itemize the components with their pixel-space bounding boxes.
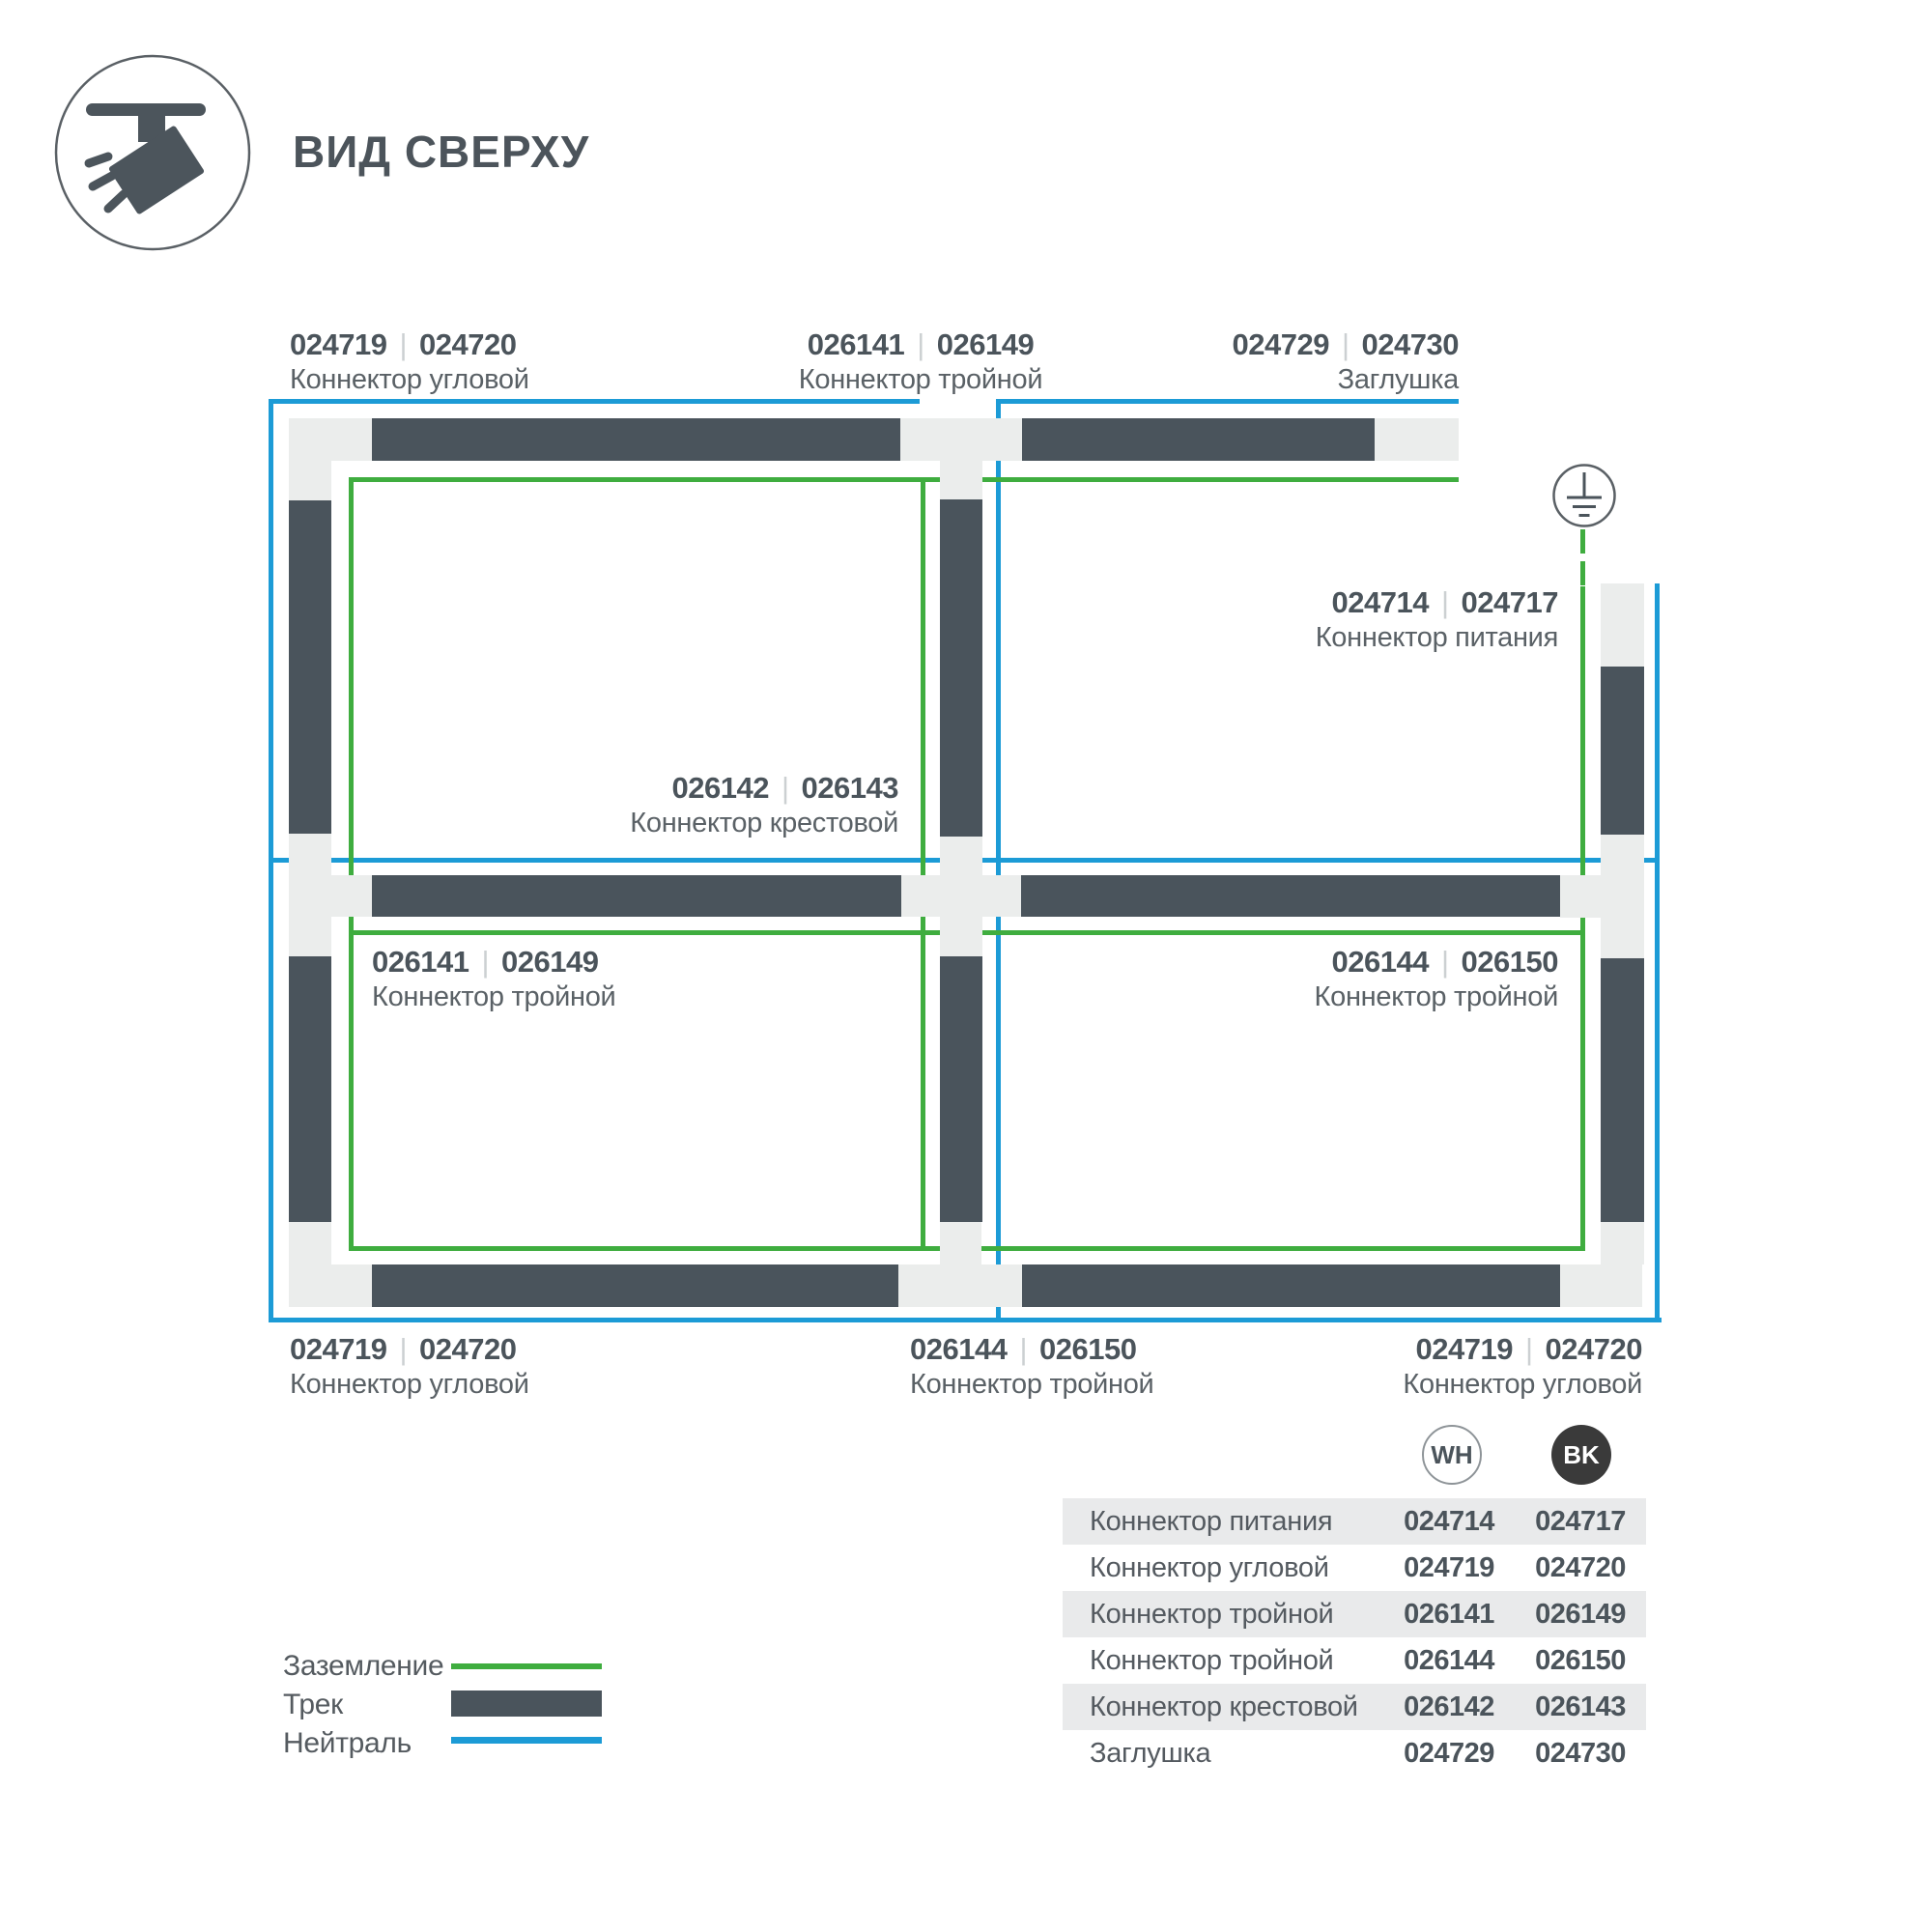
parts-table: Коннектор питания 024714 024717 Коннекто… (1063, 1498, 1646, 1776)
ground-line-right (1580, 586, 1585, 1251)
code-wh: 026141 (808, 327, 904, 361)
part-code-bk: 026150 (1515, 1645, 1646, 1677)
code-separator: | (1525, 1332, 1533, 1366)
neutral-line-top-left (269, 399, 920, 404)
neutral-line-top-right (997, 399, 1459, 404)
ground-line-left (349, 477, 354, 1251)
code-separator: | (917, 327, 924, 361)
code-separator: | (399, 327, 407, 361)
code-separator: | (1441, 585, 1449, 619)
code-bk: 026143 (802, 771, 898, 805)
corner-connector-top-left (289, 418, 372, 461)
code-wh: 024714 (1332, 585, 1429, 619)
code-separator: | (781, 771, 789, 805)
code-separator: | (1019, 1332, 1027, 1366)
ground-line-dash-2 (1580, 561, 1585, 585)
track-segment (289, 956, 331, 1222)
corner-connector-bottom-right (1560, 1264, 1642, 1307)
track-segment (940, 956, 982, 1222)
code-bk: 026149 (501, 945, 598, 979)
corner-connector-top-left (289, 461, 331, 500)
ground-line-top (349, 477, 1459, 482)
part-code-wh: 024729 (1383, 1738, 1515, 1770)
part-name: Коннектор тройной (1063, 1599, 1383, 1631)
end-cap (1375, 418, 1459, 461)
cross-connector (901, 875, 1021, 917)
connector-name: Коннектор тройной (910, 1370, 1153, 1399)
track-segment (1601, 667, 1644, 835)
label-corner-connector-bottom-left: 024719|024720 Коннектор угловой (290, 1334, 529, 1399)
connector-name: Коннектор угловой (290, 1370, 529, 1399)
triple-connector-left (331, 875, 372, 917)
connector-name: Коннектор тройной (799, 365, 1042, 394)
part-code-bk: 024717 (1515, 1506, 1646, 1538)
track-segment (1021, 875, 1560, 917)
top-view-diagram-page: ВИД СВЕРХУ (0, 0, 1932, 1932)
triple-connector-right (1601, 835, 1644, 958)
part-code-wh: 026142 (1383, 1691, 1515, 1723)
label-cross-connector: 026142|026143 Коннектор крестовой (630, 773, 898, 838)
part-code-wh: 024714 (1383, 1506, 1515, 1538)
track-segment (940, 499, 982, 838)
part-code-bk: 024730 (1515, 1738, 1646, 1770)
code-bk: 026150 (1462, 945, 1558, 979)
code-bk: 024730 (1362, 327, 1459, 361)
code-bk: 026150 (1039, 1332, 1136, 1366)
table-row: Коннектор тройной 026144 026150 (1063, 1637, 1646, 1684)
code-bk: 024717 (1462, 585, 1558, 619)
earth-ground-icon (1550, 462, 1618, 529)
label-triple-connector-right: 026144|026150 Коннектор тройной (1315, 947, 1558, 1011)
part-code-bk: 026143 (1515, 1691, 1646, 1723)
part-name: Коннектор тройной (1063, 1645, 1383, 1677)
corner-connector-bottom-left (289, 1264, 372, 1307)
triple-connector-top (940, 461, 982, 499)
table-row: Коннектор угловой 024719 024720 (1063, 1545, 1646, 1591)
cross-connector (940, 837, 982, 875)
legend-neutral-label: Нейтраль (283, 1727, 412, 1760)
table-row: Коннектор тройной 026141 026149 (1063, 1591, 1646, 1637)
code-bk: 024720 (419, 327, 516, 361)
connector-name: Коннектор угловой (1403, 1370, 1642, 1399)
neutral-line-center-vertical (996, 399, 1001, 1322)
part-code-wh: 026144 (1383, 1645, 1515, 1677)
track-light-top-view-icon (53, 53, 252, 252)
connector-name: Заглушка (1233, 365, 1459, 394)
table-row: Коннектор крестовой 026142 026143 (1063, 1684, 1646, 1730)
variant-badge-white: WH (1422, 1425, 1482, 1485)
connector-name: Коннектор тройной (372, 982, 615, 1011)
code-bk: 026149 (937, 327, 1034, 361)
code-wh: 026144 (910, 1332, 1007, 1366)
power-connector (1601, 583, 1644, 667)
code-wh: 024719 (290, 327, 386, 361)
code-wh: 026144 (1332, 945, 1429, 979)
code-wh: 024729 (1233, 327, 1329, 361)
code-separator: | (481, 945, 489, 979)
variant-badge-black: BK (1551, 1425, 1611, 1485)
legend-track-swatch (451, 1690, 602, 1717)
corner-connector-bottom-right (1601, 1222, 1644, 1264)
legend-ground-label: Заземление (283, 1650, 443, 1683)
track-segment (371, 875, 901, 917)
label-power-connector: 024714|024717 Коннектор питания (1316, 587, 1558, 652)
track-segment (1022, 1264, 1560, 1307)
part-name: Коннектор крестовой (1063, 1691, 1383, 1723)
ground-line-center-vertical (921, 477, 925, 1251)
page-title: ВИД СВЕРХУ (293, 126, 589, 178)
track-segment (372, 1264, 898, 1307)
triple-connector-left (289, 834, 331, 956)
code-separator: | (1441, 945, 1449, 979)
table-row: Коннектор питания 024714 024717 (1063, 1498, 1646, 1545)
code-wh: 026142 (672, 771, 769, 805)
connector-name: Коннектор крестовой (630, 809, 898, 838)
part-code-bk: 026149 (1515, 1599, 1646, 1631)
part-name: Заглушка (1063, 1738, 1383, 1770)
part-code-bk: 024720 (1515, 1552, 1646, 1584)
label-end-cap: 024729|024730 Заглушка (1233, 329, 1459, 394)
label-triple-connector-bottom: 026144|026150 Коннектор тройной (910, 1334, 1153, 1399)
code-bk: 024720 (1546, 1332, 1642, 1366)
part-code-wh: 026141 (1383, 1599, 1515, 1631)
neutral-line-right (1655, 583, 1660, 1322)
connector-name: Коннектор угловой (290, 365, 529, 394)
label-triple-connector-left: 026141|026149 Коннектор тройной (372, 947, 615, 1011)
track-segment (289, 500, 331, 834)
triple-connector-bottom (940, 1222, 981, 1264)
label-corner-connector-top-left: 024719|024720 Коннектор угловой (290, 329, 529, 394)
code-wh: 024719 (1416, 1332, 1513, 1366)
ground-line-dash-1 (1580, 529, 1585, 554)
connector-name: Коннектор питания (1316, 623, 1558, 652)
corner-connector-bottom-left (289, 1222, 331, 1264)
label-triple-connector-top: 026141|026149 Коннектор тройной (799, 329, 1042, 394)
code-separator: | (399, 1332, 407, 1366)
legend-track-label: Трек (283, 1689, 343, 1721)
code-bk: 024720 (419, 1332, 516, 1366)
triple-connector-right (1560, 875, 1601, 918)
legend-neutral-swatch (451, 1737, 602, 1744)
track-segment (1601, 958, 1644, 1222)
label-corner-connector-bottom-right: 024719|024720 Коннектор угловой (1403, 1334, 1642, 1399)
legend-ground-swatch (451, 1663, 602, 1669)
triple-connector-bottom (898, 1264, 1022, 1307)
table-row: Заглушка 024729 024730 (1063, 1730, 1646, 1776)
track-segment (1022, 418, 1375, 461)
part-name: Коннектор питания (1063, 1506, 1383, 1538)
code-wh: 024719 (290, 1332, 386, 1366)
code-separator: | (1342, 327, 1350, 361)
triple-connector-top (900, 418, 1022, 461)
cross-connector (940, 917, 982, 956)
code-wh: 026141 (372, 945, 469, 979)
part-code-wh: 024719 (1383, 1552, 1515, 1584)
connector-name: Коннектор тройной (1315, 982, 1558, 1011)
neutral-line-bottom (269, 1318, 1662, 1322)
part-name: Коннектор угловой (1063, 1552, 1383, 1584)
track-segment (372, 418, 900, 461)
